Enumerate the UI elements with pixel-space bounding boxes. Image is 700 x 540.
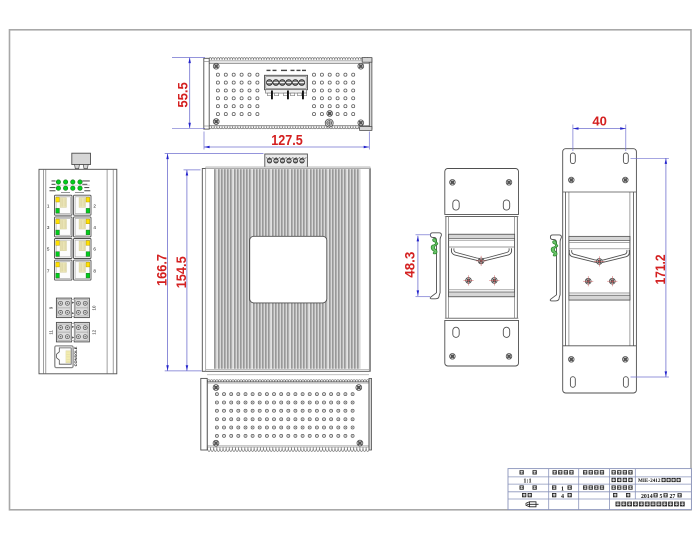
svg-text:154.5: 154.5 [174,256,189,288]
svg-text:55.5: 55.5 [174,82,190,108]
svg-text:7: 7 [47,268,50,273]
svg-text:5: 5 [47,247,50,252]
svg-text:MIE-2412: MIE-2412 [638,478,661,484]
svg-text:166.7: 166.7 [154,254,169,286]
svg-text:2014: 2014 [641,494,653,500]
svg-text:1: 1 [47,203,50,208]
svg-text:4: 4 [93,225,96,230]
svg-text:11: 11 [49,329,54,334]
svg-text:1: 1 [561,486,564,492]
svg-text:48.3: 48.3 [403,251,418,277]
svg-text:27: 27 [670,494,676,500]
svg-text:4: 4 [561,494,564,500]
svg-text:2: 2 [93,203,96,208]
svg-text:171.2: 171.2 [653,254,669,284]
svg-text:6: 6 [93,247,96,252]
svg-text:1:1: 1:1 [523,478,531,485]
svg-text:12: 12 [92,329,97,334]
svg-text:3: 3 [47,225,50,230]
svg-text:8: 8 [93,268,96,273]
svg-text:5: 5 [660,494,663,500]
svg-text:40: 40 [592,115,607,129]
svg-text:10: 10 [92,305,97,310]
svg-text:CONSOLE: CONSOLE [73,346,78,366]
svg-text:127.5: 127.5 [271,133,303,149]
